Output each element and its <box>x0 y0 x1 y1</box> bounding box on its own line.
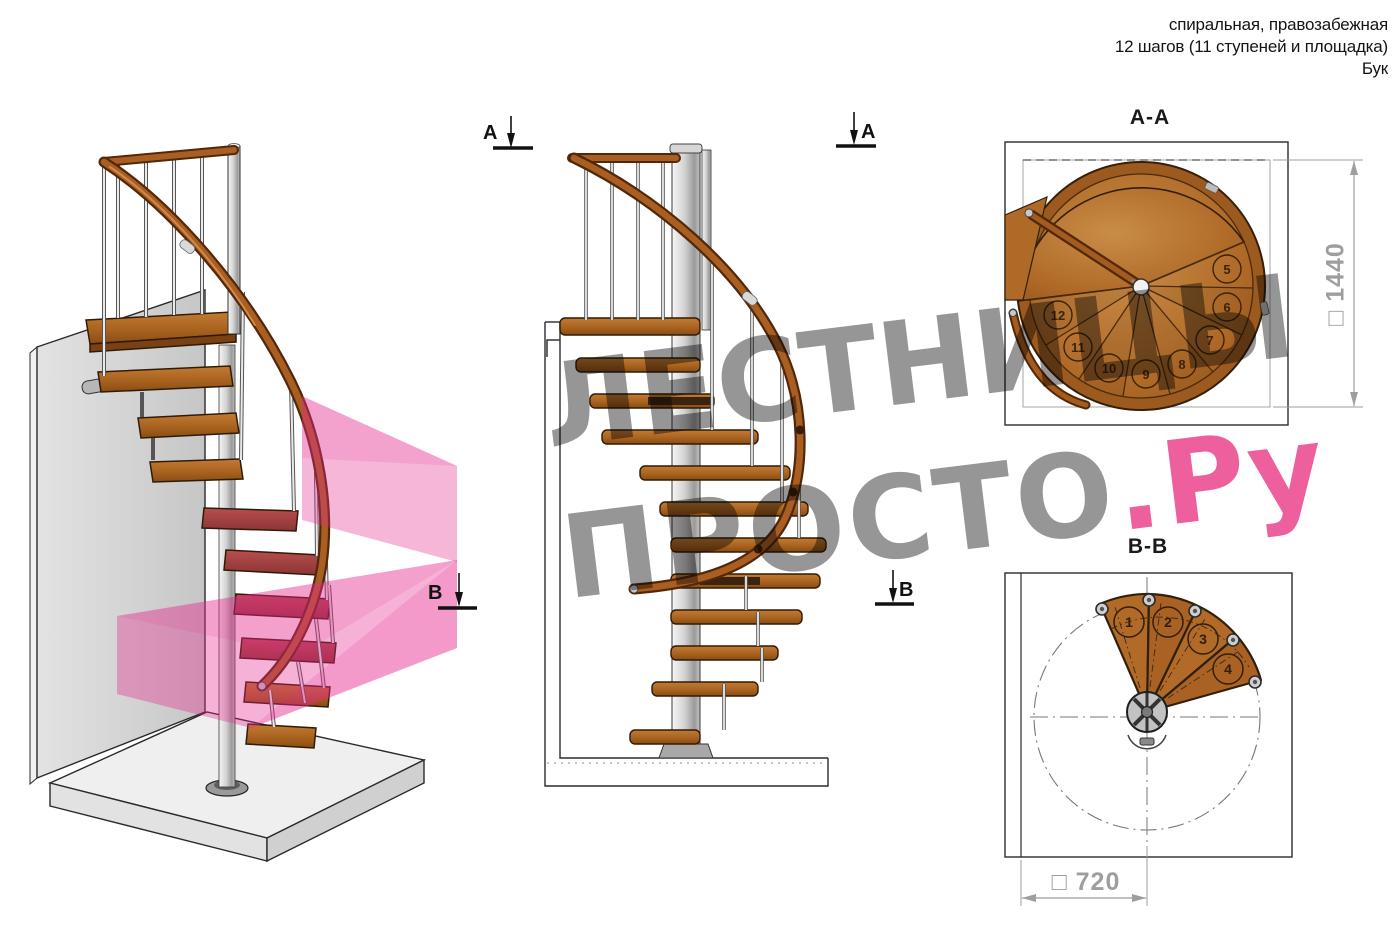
view-3d-staircase <box>30 144 457 862</box>
section-marker-a-left: А <box>483 116 533 148</box>
step-number: 8 <box>1178 357 1185 372</box>
step <box>150 459 243 482</box>
column-base <box>659 744 713 758</box>
step-number: 3 <box>1199 631 1207 647</box>
step-number: 9 <box>1142 367 1149 382</box>
center-bearing <box>1127 692 1167 749</box>
step-number: 4 <box>1224 661 1232 677</box>
marker-letter: А <box>483 122 497 144</box>
drawing-sheet: А А В В А-А <box>0 0 1400 931</box>
section-aa-title: А-А <box>1130 106 1170 129</box>
section-bb: В-В <box>1005 535 1292 906</box>
step <box>202 508 298 531</box>
step-number: 10 <box>1102 361 1116 376</box>
step-number: 1 <box>1125 614 1133 630</box>
marker-letter: В <box>899 579 913 601</box>
step-number: 11 <box>1071 340 1085 355</box>
step <box>224 550 320 575</box>
step-number: 6 <box>1223 300 1230 315</box>
dimension-bb: □ 720 <box>1021 846 1147 906</box>
marker-letter: А <box>861 121 875 143</box>
step-number: 12 <box>1051 308 1065 323</box>
section-marker-a-right: А <box>836 112 876 146</box>
dimension-aa: □ 1440 <box>1273 160 1363 407</box>
dimension-label: □ 1440 <box>1322 242 1350 326</box>
section-marker-b-right: В <box>875 570 914 604</box>
landing-bracket <box>547 340 560 357</box>
step <box>246 724 316 748</box>
spec-line-type: спиральная, правозабежная <box>1115 14 1388 36</box>
landing-corner-post <box>228 146 240 334</box>
step-number: 2 <box>1164 614 1172 630</box>
section-aa: А-А <box>1005 106 1363 425</box>
step-number: 5 <box>1223 262 1230 277</box>
column-top-cap <box>670 144 702 153</box>
spec-header: спиральная, правозабежная 12 шагов (11 с… <box>1115 14 1388 80</box>
landing-board <box>560 318 700 335</box>
dimension-label: □ 720 <box>1052 868 1121 896</box>
step-number: 7 <box>1206 333 1213 348</box>
spec-line-steps: 12 шагов (11 ступеней и площадка) <box>1115 36 1388 58</box>
step <box>138 413 239 438</box>
view-elevation <box>545 144 828 786</box>
wall-side-face <box>30 347 37 784</box>
staircase-drawing: А А В В А-А <box>0 0 1400 931</box>
marker-letter: В <box>428 582 442 604</box>
section-bb-title: В-В <box>1128 535 1168 558</box>
spec-line-material: Бук <box>1115 58 1388 80</box>
